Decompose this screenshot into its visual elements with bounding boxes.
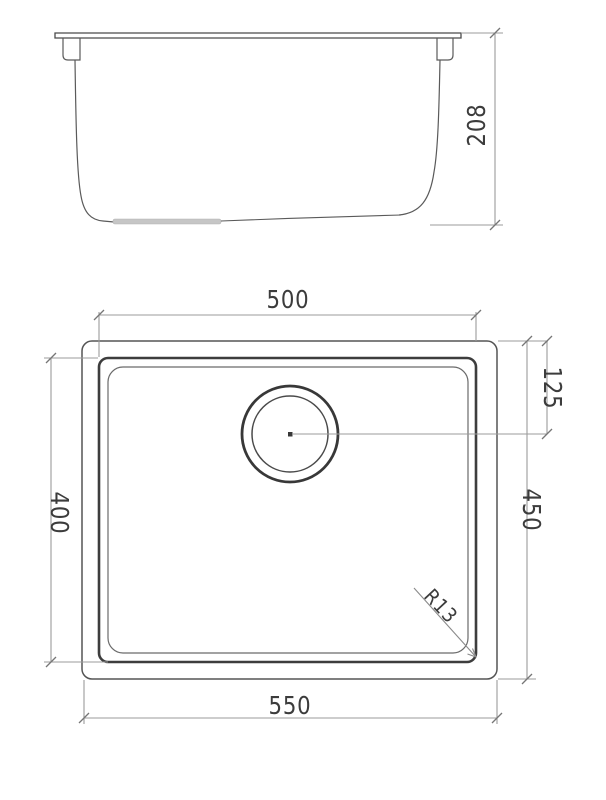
dim-label-bowl-depth: 400: [45, 479, 73, 547]
side-drain-strip: [113, 219, 221, 224]
clip-right: [437, 38, 453, 60]
drawing-linework: [0, 0, 606, 800]
drain-center-mark: [288, 432, 293, 437]
clip-left: [63, 38, 80, 60]
side-wall-right: [399, 60, 440, 215]
plan-view: [44, 310, 552, 724]
plan-floor-rect: [108, 367, 468, 653]
dim-label-side-height: 208: [463, 91, 491, 159]
dim-label-bowl-width: 500: [254, 286, 322, 314]
plan-bowl-rect: [99, 358, 476, 662]
side-view: [55, 28, 503, 230]
side-wall-left: [75, 60, 114, 222]
dim-label-overall-depth: 450: [517, 476, 545, 544]
side-bottom: [221, 215, 401, 221]
dim-label-overall-width: 550: [256, 692, 324, 720]
technical-drawing-canvas: 208 500 400 450 125 550 R13: [0, 0, 606, 800]
dim-label-drain-offset: 125: [538, 354, 566, 422]
plan-outer-rect: [82, 341, 497, 679]
dim-500: [94, 310, 481, 357]
side-rim: [55, 33, 461, 38]
